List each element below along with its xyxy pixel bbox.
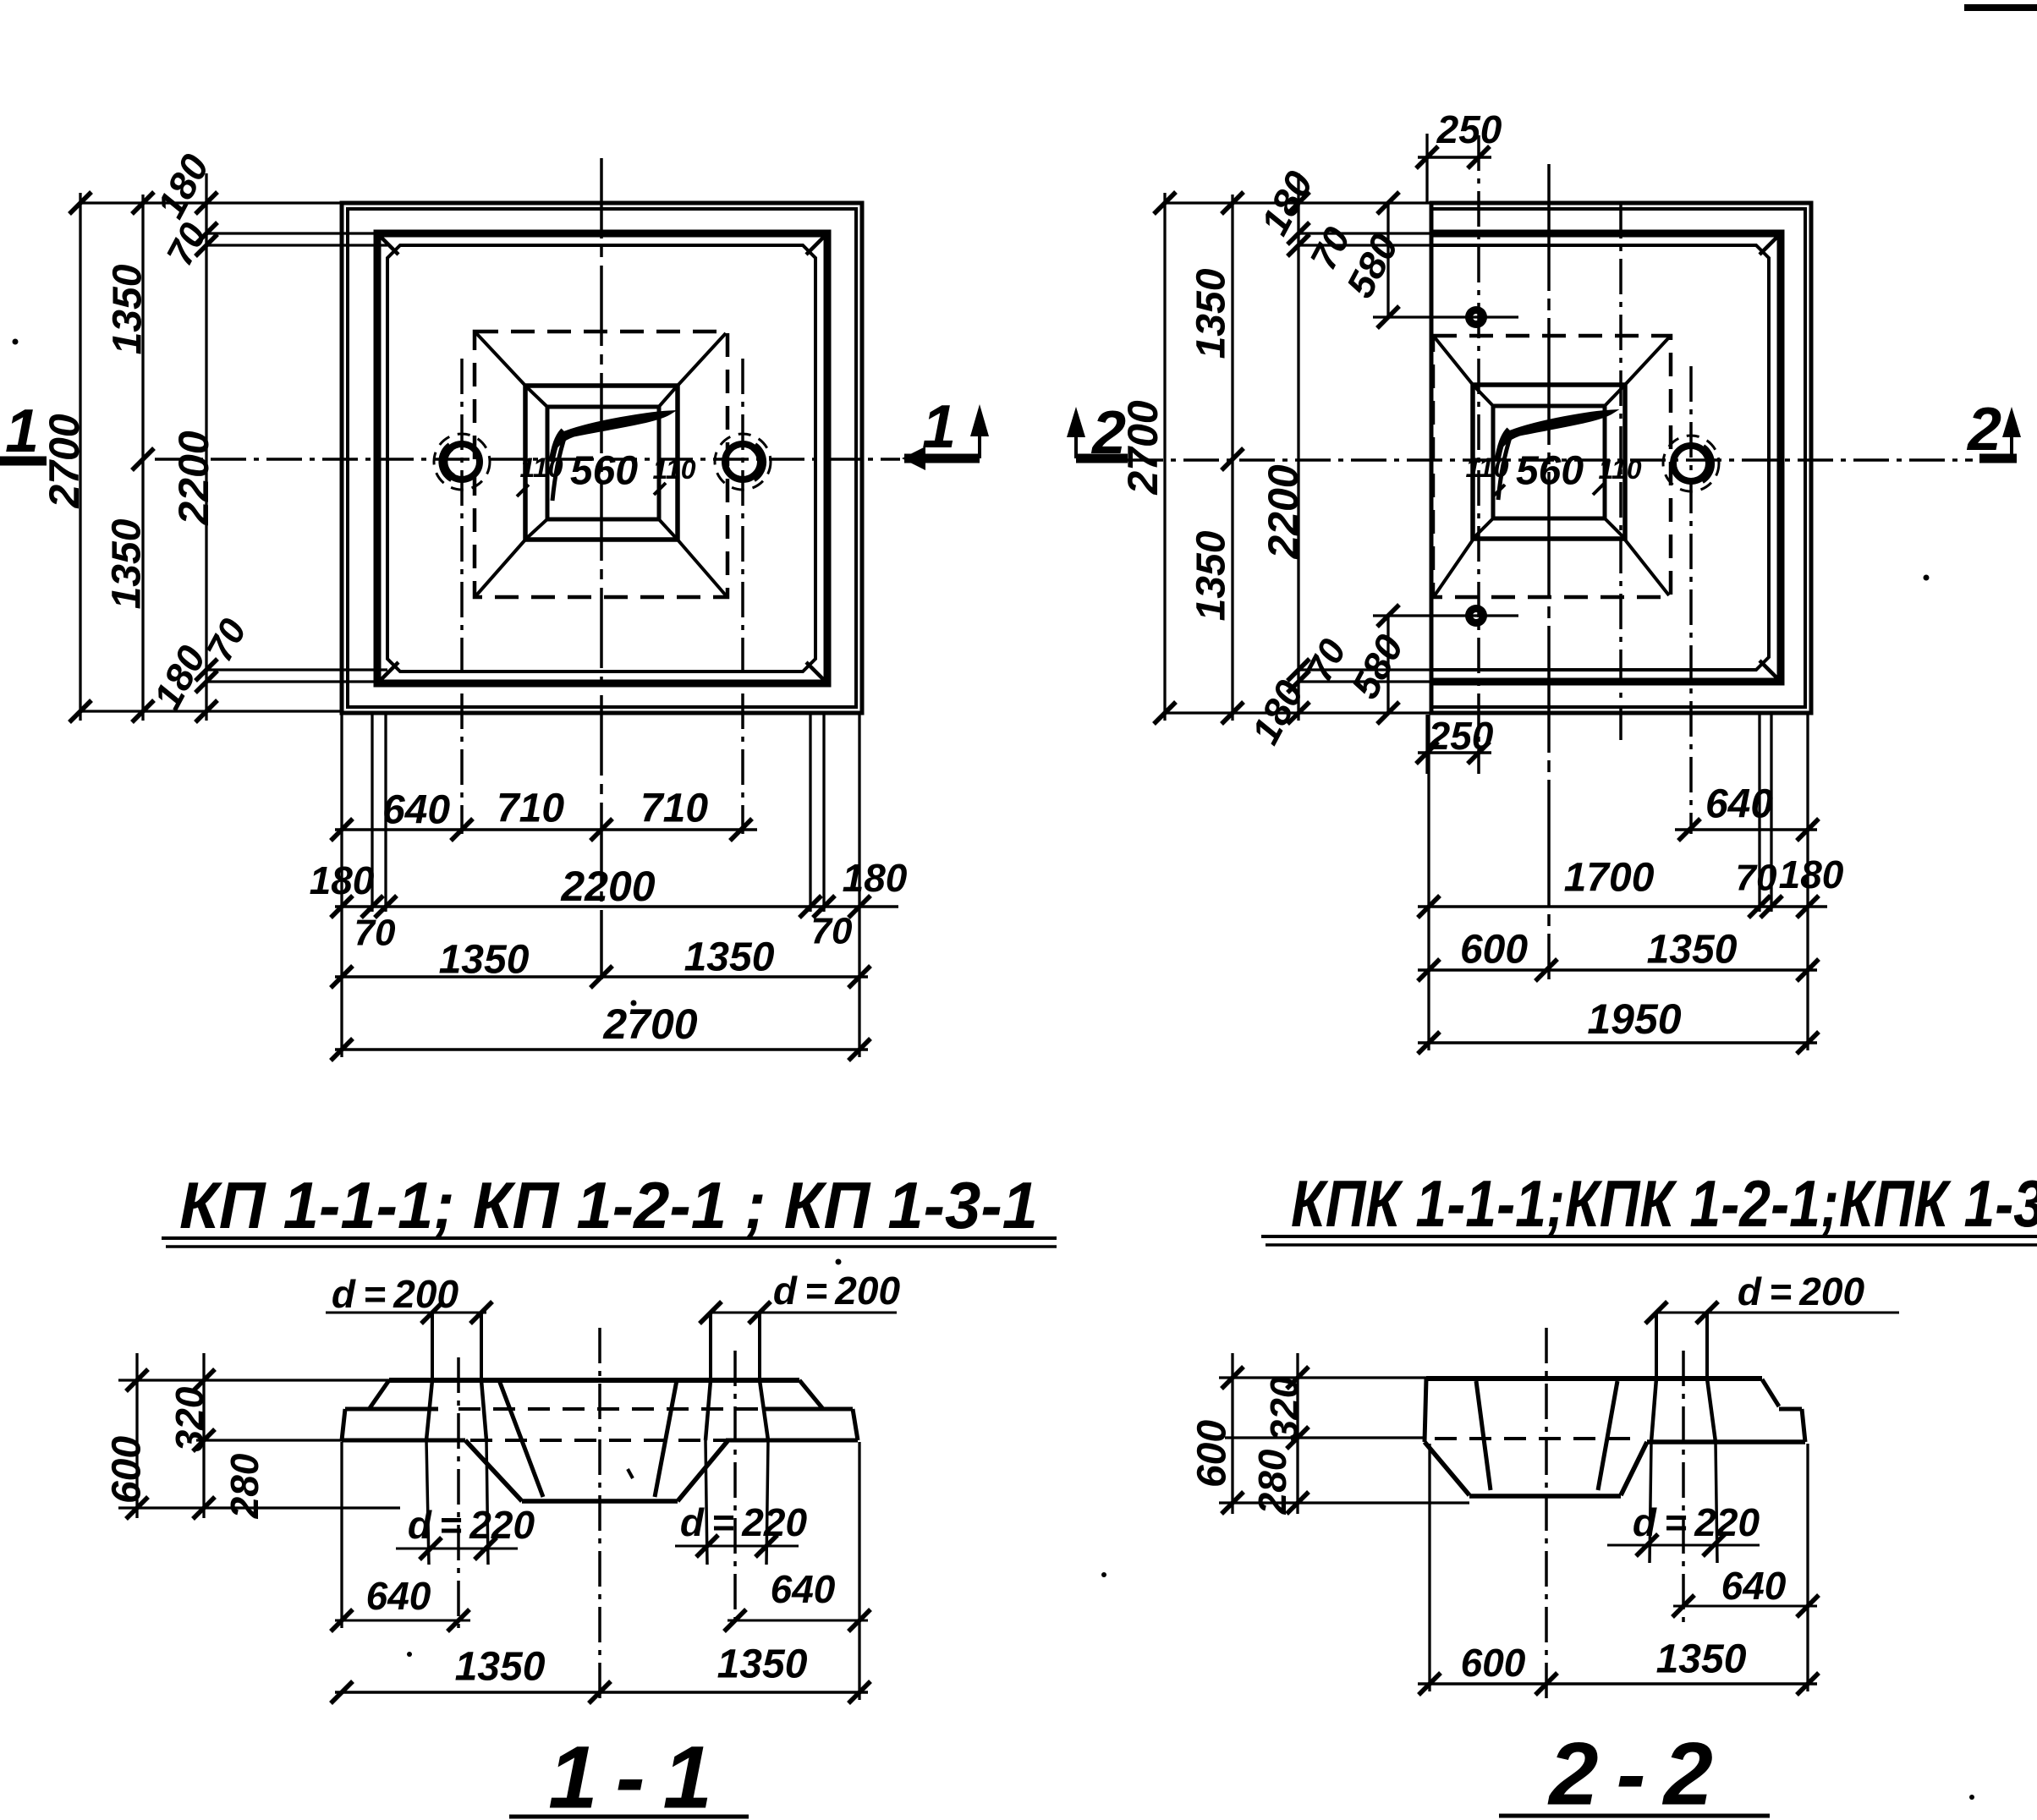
svg-text:1350: 1350 xyxy=(717,1642,808,1687)
svg-text:d = 200: d = 200 xyxy=(332,1272,459,1316)
svg-text:560: 560 xyxy=(570,449,638,494)
svg-text:70: 70 xyxy=(811,911,853,952)
svg-text:280: 280 xyxy=(222,1453,266,1519)
svg-text:600: 600 xyxy=(105,1436,150,1504)
svg-text:КПК 1-1-1;КПК 1-2-1;КПК 1-3-1: КПК 1-1-1;КПК 1-2-1;КПК 1-3-1 xyxy=(1291,1166,2037,1241)
svg-text:320: 320 xyxy=(167,1386,211,1451)
svg-text:1350: 1350 xyxy=(684,935,775,980)
svg-text:70: 70 xyxy=(1736,858,1777,899)
svg-text:320: 320 xyxy=(1262,1376,1306,1441)
svg-text:580: 580 xyxy=(1342,628,1412,706)
svg-text:1350: 1350 xyxy=(1656,1637,1747,1682)
svg-text:1350: 1350 xyxy=(439,938,530,983)
svg-text:1700: 1700 xyxy=(1564,856,1655,901)
svg-text:70: 70 xyxy=(354,913,396,954)
svg-text:600: 600 xyxy=(1190,1420,1235,1488)
svg-text:1: 1 xyxy=(922,393,956,461)
svg-text:1 - 1: 1 - 1 xyxy=(548,1729,712,1820)
svg-text:2: 2 xyxy=(1090,399,1126,467)
svg-text:1350: 1350 xyxy=(1189,268,1234,359)
svg-text:640: 640 xyxy=(1705,782,1773,827)
svg-text:2200: 2200 xyxy=(170,430,217,525)
svg-text:2700: 2700 xyxy=(1119,400,1167,495)
svg-text:1350: 1350 xyxy=(455,1645,546,1690)
svg-text:180: 180 xyxy=(310,858,375,902)
svg-text:2700: 2700 xyxy=(602,1000,697,1048)
svg-text:2: 2 xyxy=(1966,396,2001,463)
svg-text:1: 1 xyxy=(5,397,39,465)
svg-text:280: 280 xyxy=(1250,1449,1294,1515)
svg-text:250: 250 xyxy=(1436,107,1502,151)
svg-text:110: 110 xyxy=(519,452,563,483)
svg-text:КП 1-1-1; КП 1-2-1 ; КП 1-3-1: КП 1-1-1; КП 1-2-1 ; КП 1-3-1 xyxy=(179,1168,1038,1242)
svg-text:2200: 2200 xyxy=(1260,464,1307,559)
svg-text:640: 640 xyxy=(366,1574,431,1618)
svg-text:2700: 2700 xyxy=(41,414,88,508)
svg-text:180: 180 xyxy=(1779,852,1844,896)
svg-text:640: 640 xyxy=(382,788,450,833)
svg-text:640: 640 xyxy=(771,1567,836,1611)
svg-text:710: 710 xyxy=(640,787,708,831)
svg-text:1350: 1350 xyxy=(1189,530,1234,621)
svg-text:710: 710 xyxy=(497,787,564,831)
svg-text:1350: 1350 xyxy=(1647,928,1738,973)
svg-text:250: 250 xyxy=(1428,714,1494,758)
svg-text:600: 600 xyxy=(1460,928,1528,973)
svg-text:180: 180 xyxy=(1252,164,1321,243)
svg-text:110: 110 xyxy=(1465,452,1508,483)
svg-text:1350: 1350 xyxy=(105,518,150,609)
svg-text:1350: 1350 xyxy=(106,264,151,354)
svg-text:600: 600 xyxy=(1461,1641,1526,1685)
svg-text:640: 640 xyxy=(1721,1564,1787,1608)
svg-text:d = 220: d = 220 xyxy=(408,1503,535,1547)
svg-text:180: 180 xyxy=(843,856,908,900)
svg-text:2 - 2: 2 - 2 xyxy=(1547,1725,1713,1820)
svg-text:d = 200: d = 200 xyxy=(773,1269,901,1313)
svg-text:d = 220: d = 220 xyxy=(680,1500,808,1544)
svg-text:d = 200: d = 200 xyxy=(1738,1269,1865,1313)
svg-text:180: 180 xyxy=(1243,673,1312,752)
svg-text:d = 220: d = 220 xyxy=(1633,1500,1760,1544)
svg-text:2200: 2200 xyxy=(560,863,655,910)
svg-text:1950: 1950 xyxy=(1587,995,1681,1043)
